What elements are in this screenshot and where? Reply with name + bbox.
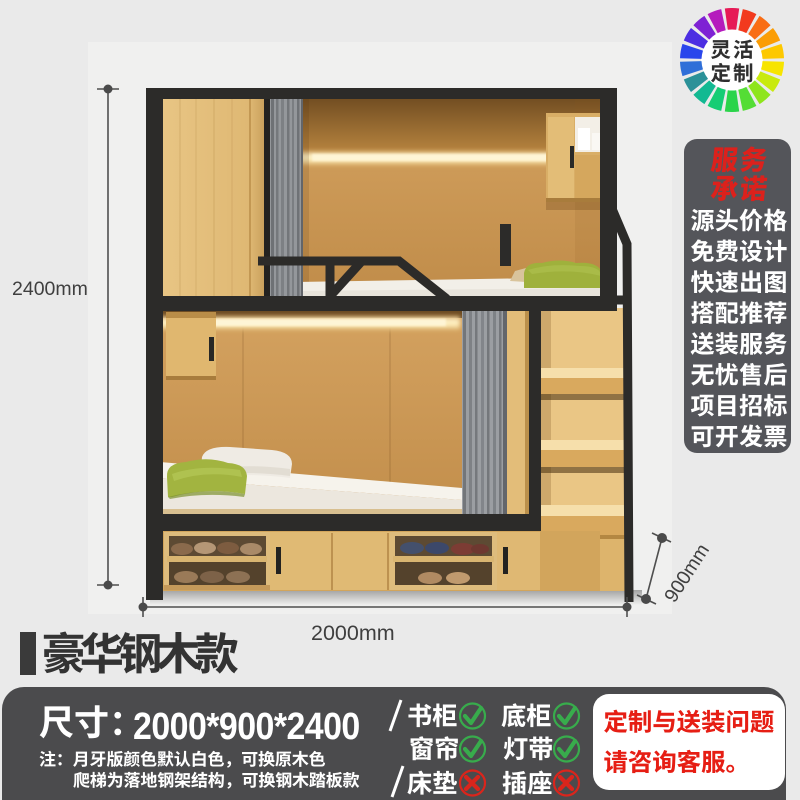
svg-text:2000*900*2400: 2000*900*2400 [133,704,360,747]
